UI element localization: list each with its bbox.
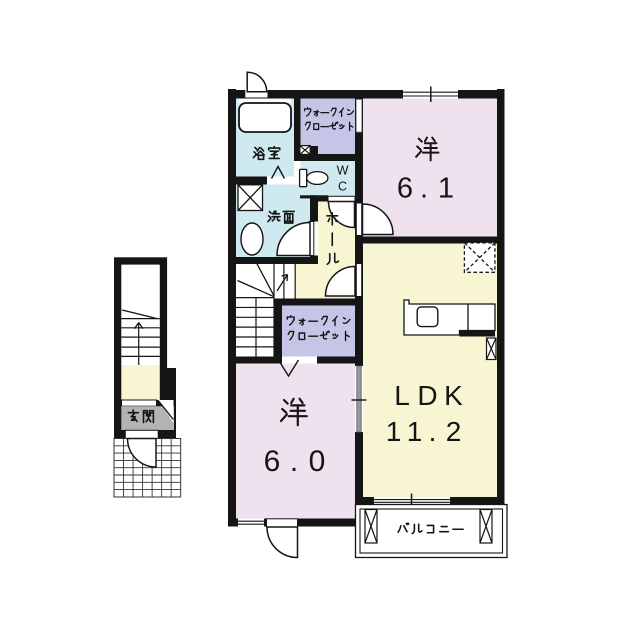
svg-text:2: 2 [446, 416, 462, 447]
svg-text:.: . [429, 416, 437, 447]
svg-text:1: 1 [407, 416, 423, 447]
svg-text:K: K [444, 380, 463, 411]
svg-text:W: W [337, 164, 349, 178]
svg-text:6: 6 [397, 173, 413, 205]
svg-text:L: L [394, 380, 410, 411]
svg-text:0: 0 [309, 445, 326, 478]
svg-text:6: 6 [264, 445, 281, 478]
svg-text:1: 1 [386, 416, 402, 447]
svg-text:D: D [417, 380, 437, 411]
svg-text:.: . [290, 445, 298, 478]
svg-text:1: 1 [438, 173, 454, 205]
svg-text:C: C [338, 180, 347, 194]
svg-text:.: . [420, 173, 428, 205]
